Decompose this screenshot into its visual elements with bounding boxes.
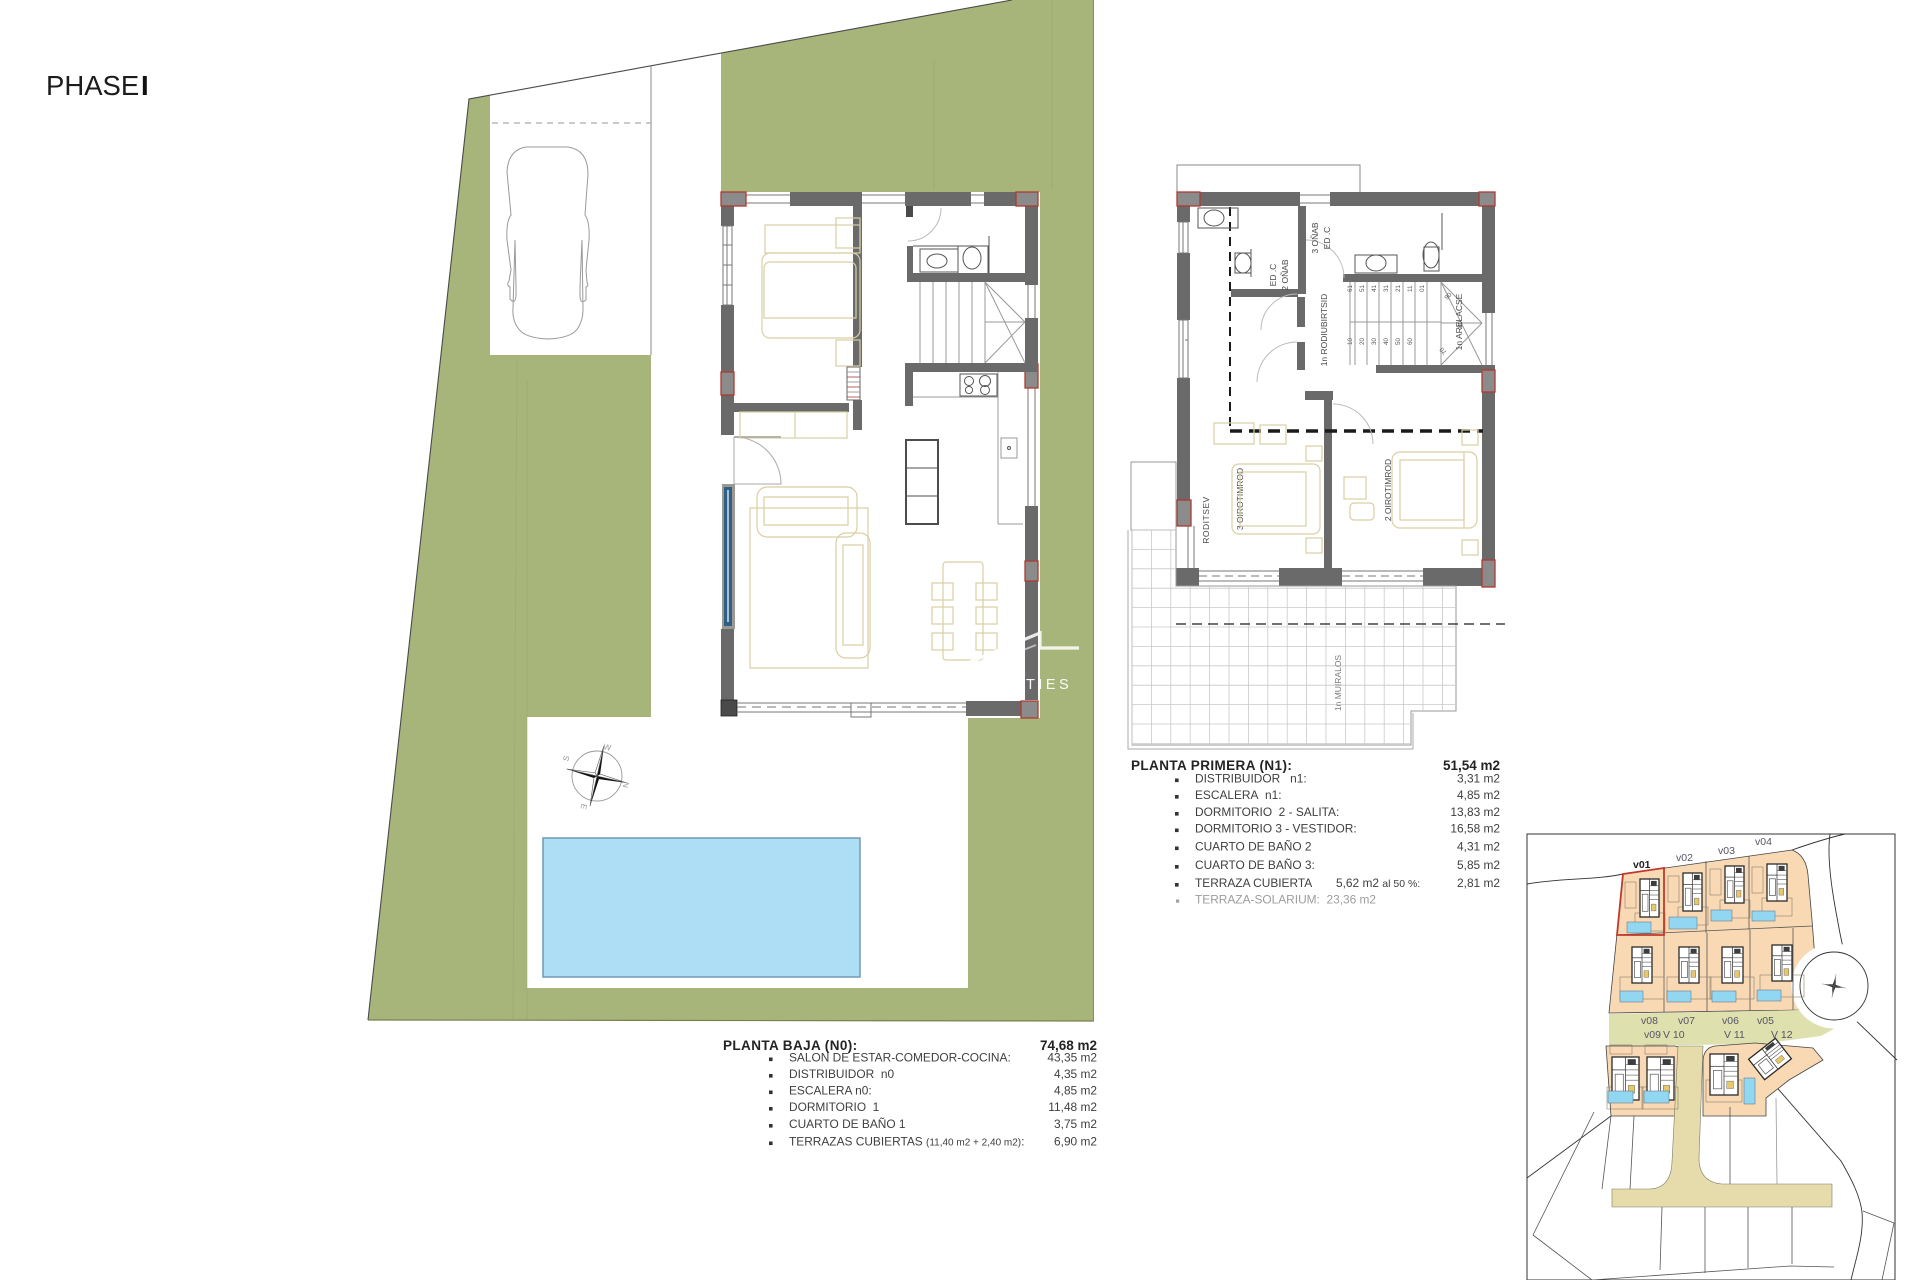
svg-text:51: 51: [1359, 284, 1366, 292]
svg-text:50: 50: [1395, 337, 1402, 345]
svg-text:4,31 m2: 4,31 m2: [1457, 840, 1500, 854]
svg-text:CUARTO DE BAÑO 2: CUARTO DE BAÑO 2: [1195, 840, 1312, 854]
svg-text:16,58 m2: 16,58 m2: [1450, 822, 1500, 836]
svg-text:5,85 m2: 5,85 m2: [1457, 858, 1500, 872]
svg-text:DORMITORIO 3 - VESTIDOR:: DORMITORIO 3 - VESTIDOR:: [1195, 822, 1357, 836]
svg-text:4,85 m2: 4,85 m2: [1457, 788, 1500, 802]
svg-text:I: I: [141, 70, 149, 101]
svg-text:v02: v02: [1676, 852, 1693, 864]
svg-text:TIES: TIES: [1026, 677, 1072, 693]
svg-text:RODITSEV: RODITSEV: [1201, 496, 1211, 543]
svg-text:v06: v06: [1722, 1015, 1739, 1027]
svg-text:ED .C: ED .C: [1322, 227, 1332, 250]
svg-text:DISTRIBUIDOR n0: DISTRIBUIDOR n0: [789, 1067, 894, 1081]
svg-text:11,48 m2: 11,48 m2: [1048, 1100, 1097, 1114]
svg-text:TERRAZA-SOLARIUM: 23,36 m2: TERRAZA-SOLARIUM: 23,36 m2: [1195, 893, 1376, 907]
svg-text:31: 31: [1383, 284, 1390, 292]
svg-text:2,81 m2: 2,81 m2: [1457, 876, 1500, 890]
svg-text:V 11: V 11: [1724, 1029, 1745, 1041]
svg-text:DORMITORIO 2 - SALITA:: DORMITORIO 2 - SALITA:: [1195, 805, 1339, 819]
svg-text:4,85 m2: 4,85 m2: [1054, 1084, 1097, 1098]
svg-text:v07: v07: [1678, 1015, 1695, 1027]
svg-text:CUARTO DE BAÑO 3:: CUARTO DE BAÑO 3:: [1195, 858, 1315, 872]
svg-text:3,31 m2: 3,31 m2: [1457, 772, 1500, 786]
svg-text:ESCALERA n1:: ESCALERA n1:: [1195, 788, 1282, 802]
svg-text:3,75 m2: 3,75 m2: [1054, 1117, 1097, 1131]
svg-text:TERRAZA CUBIERTA: TERRAZA CUBIERTA: [1195, 876, 1312, 890]
svg-text:10: 10: [1347, 337, 1354, 345]
svg-text:v08: v08: [1641, 1015, 1658, 1027]
svg-text:41: 41: [1371, 284, 1378, 292]
svg-text:SALON DE ESTAR-COMEDOR-COCINA:: SALON DE ESTAR-COMEDOR-COCINA:: [789, 1051, 1011, 1065]
svg-text:V 12: V 12: [1771, 1029, 1793, 1041]
svg-text:5,62 m2 al 50 %:: 5,62 m2 al 50 %:: [1336, 876, 1420, 890]
svg-text:v01: v01: [1633, 859, 1651, 871]
svg-text:6,90 m2: 6,90 m2: [1054, 1135, 1097, 1149]
svg-text:PHASE: PHASE: [46, 70, 139, 101]
svg-text:13,83 m2: 13,83 m2: [1450, 805, 1500, 819]
svg-text:CUARTO DE BAÑO 1: CUARTO DE BAÑO 1: [789, 1117, 906, 1131]
svg-text:30: 30: [1371, 337, 1378, 345]
svg-text:4,35 m2: 4,35 m2: [1054, 1067, 1097, 1081]
svg-text:1n ARELACSE: 1n ARELACSE: [1454, 293, 1464, 350]
svg-text:ESCALERA n0:: ESCALERA n0:: [789, 1084, 872, 1098]
svg-text:TERRAZAS CUBIERTAS (11,40 m2 +: TERRAZAS CUBIERTAS (11,40 m2 + 2,40 m2):: [789, 1135, 1024, 1149]
svg-text:60: 60: [1407, 337, 1414, 345]
svg-text:40: 40: [1383, 337, 1390, 345]
svg-text:ED .C: ED .C: [1268, 264, 1278, 287]
svg-text:01: 01: [1419, 284, 1426, 292]
svg-text:21: 21: [1395, 284, 1402, 292]
svg-text:3 OÑAB: 3 OÑAB: [1310, 222, 1320, 254]
svg-text:v03: v03: [1718, 845, 1735, 857]
svg-text:v04: v04: [1755, 836, 1772, 848]
svg-text:61: 61: [1347, 284, 1354, 292]
svg-text:11: 11: [1407, 285, 1414, 292]
svg-text:V 10: V 10: [1663, 1029, 1685, 1041]
svg-text:1n RODIUBIRTSID: 1n RODIUBIRTSID: [1319, 294, 1329, 367]
svg-text:v05: v05: [1757, 1015, 1774, 1027]
svg-text:2 OÑAB: 2 OÑAB: [1280, 259, 1290, 291]
svg-text:1n MUIRALOS: 1n MUIRALOS: [1333, 655, 1343, 712]
svg-text:20: 20: [1359, 337, 1366, 345]
svg-text:DORMITORIO 1: DORMITORIO 1: [789, 1100, 880, 1114]
svg-text:DISTRIBUIDOR n1:: DISTRIBUIDOR n1:: [1195, 772, 1307, 786]
svg-text:43,35 m2: 43,35 m2: [1047, 1051, 1097, 1065]
svg-text:v09: v09: [1644, 1029, 1661, 1041]
